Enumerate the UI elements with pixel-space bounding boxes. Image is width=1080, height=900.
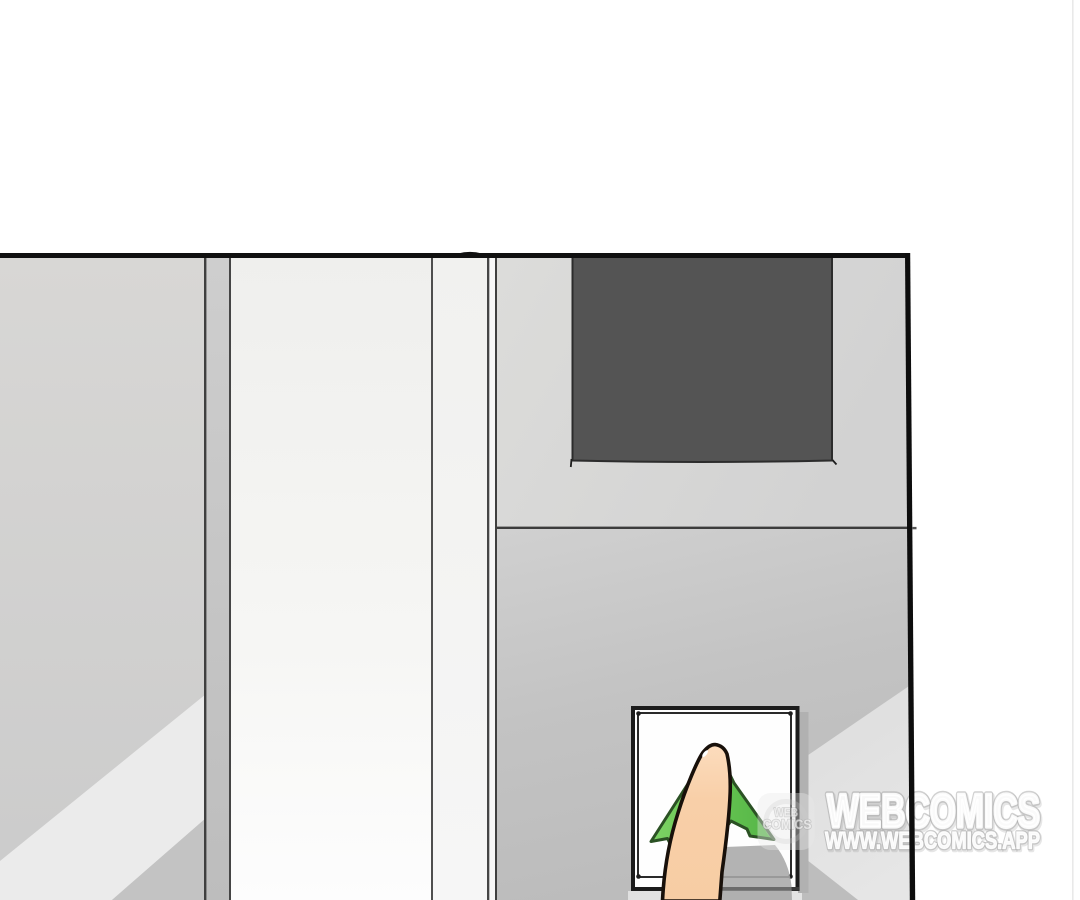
svg-text:WWW.WEBCOMICS.APP: WWW.WEBCOMICS.APP <box>825 828 1040 855</box>
svg-text:COMICS: COMICS <box>763 817 812 832</box>
